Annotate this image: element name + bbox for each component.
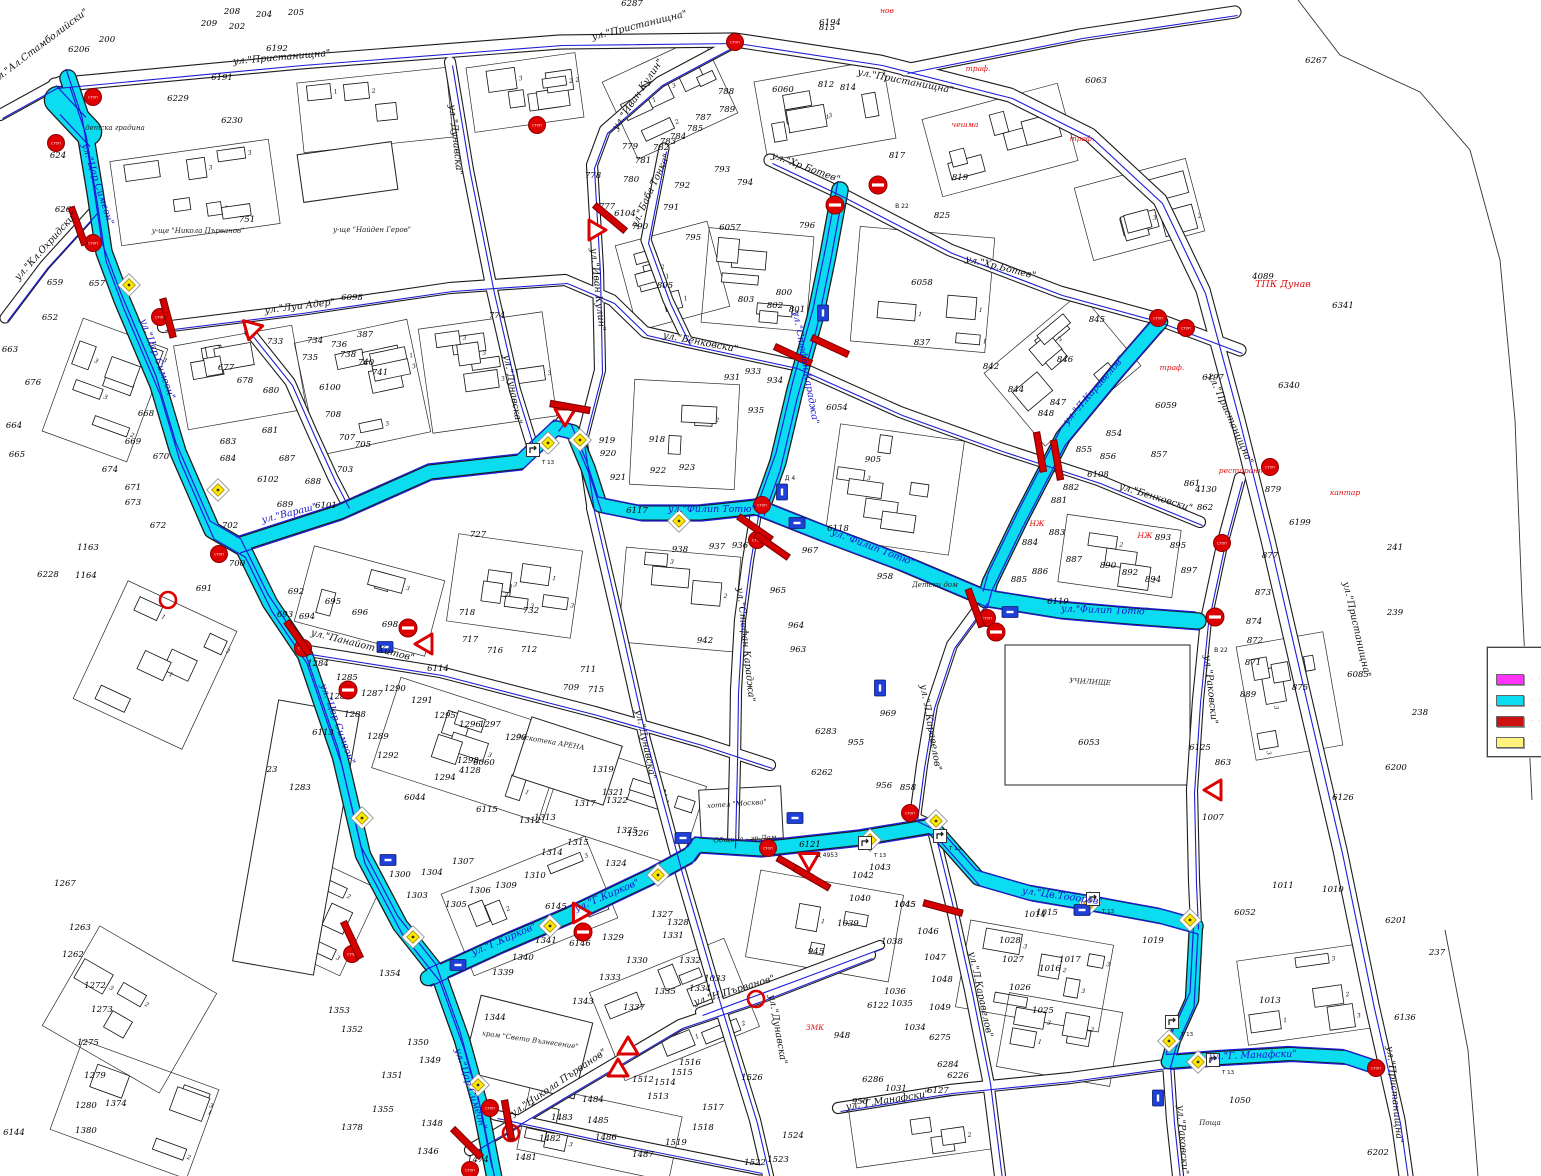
svg-text:Т 13: Т 13 xyxy=(873,853,887,859)
parcel-number: 1287 xyxy=(361,689,383,699)
parcel-number: 942 xyxy=(697,636,713,646)
parcel-number: 845 xyxy=(1089,315,1105,325)
parcel-number: 681 xyxy=(262,426,278,436)
red-note-label: траф. xyxy=(1070,134,1095,143)
legend-item-red-line: · · · · · · xyxy=(1496,715,1541,727)
parcel-number: 693 xyxy=(277,610,293,620)
parcel-number: 237 xyxy=(1428,948,1446,958)
parcel-number: 674 xyxy=(102,465,118,475)
parcel-number: 1335 xyxy=(654,987,676,997)
parcel-number: 1328 xyxy=(667,918,689,928)
parcel-number: 707 xyxy=(339,433,356,443)
parcel-number: 1283 xyxy=(289,783,311,793)
parcel-number: 736 xyxy=(331,340,348,350)
parcel-number: 6059 xyxy=(1155,401,1177,411)
parcel-number: 1292 xyxy=(377,751,399,761)
svg-text:1: 1 xyxy=(160,613,166,621)
parcel-number: 6044 xyxy=(404,793,426,803)
parcel-number: 905 xyxy=(865,455,881,465)
svg-text:2: 2 xyxy=(568,77,574,85)
parcel-number: 922 xyxy=(650,466,666,476)
svg-text:3: 3 xyxy=(568,1141,573,1149)
parcel-block: 3223 xyxy=(466,53,585,133)
parcel-number: 956 xyxy=(876,781,893,791)
svg-text:СТОП: СТОП xyxy=(1181,326,1191,330)
bar-sign-icon xyxy=(811,335,850,358)
parcel-number: 1348 xyxy=(421,1119,443,1129)
parcel-number: 895 xyxy=(1170,541,1186,551)
parcel-number: 792 xyxy=(674,181,690,191)
parcel-number: 886 xyxy=(1032,567,1049,577)
parcel-number: 1482 xyxy=(539,1134,561,1144)
street-name-label: у-ще "Найден Геров" xyxy=(332,226,411,234)
parcel-number: 933 xyxy=(745,367,761,377)
map-svg: 3332132232311133132333323133333213133111… xyxy=(0,0,1541,1176)
parcel-number: 676 xyxy=(25,378,42,388)
svg-text:Т 13: Т 13 xyxy=(541,460,555,466)
svg-text:1: 1 xyxy=(683,295,689,303)
parcel-number: 1514 xyxy=(654,1078,676,1088)
parcel-number: 6226 xyxy=(947,1071,969,1081)
parcel-number: 6194 xyxy=(819,18,841,28)
svg-text:1: 1 xyxy=(821,918,826,926)
svg-text:3: 3 xyxy=(1106,961,1111,969)
parcel-number: 812 xyxy=(818,80,834,90)
svg-text:3: 3 xyxy=(671,82,678,90)
parcel-number: 1518 xyxy=(692,1123,714,1133)
parcel-number: 657 xyxy=(89,279,106,289)
parcel-number: 897 xyxy=(1181,566,1198,576)
parcel-block: 121 xyxy=(73,581,239,751)
parcel-number: 202 xyxy=(228,22,245,32)
parcel-number: 1013 xyxy=(1259,996,1281,1006)
parcel-number: 1297 xyxy=(479,720,501,730)
parcel-number: 918 xyxy=(649,435,666,445)
parcel-number: 684 xyxy=(220,454,236,464)
parcel-number: 1267 xyxy=(54,879,76,889)
svg-text:СТОП: СТОП xyxy=(905,811,915,815)
parcel-number: 802 xyxy=(767,301,783,311)
street-name-label: Д 4953 xyxy=(816,852,838,859)
svg-text:3: 3 xyxy=(108,984,115,992)
parcel-number: 238 xyxy=(1411,708,1429,718)
svg-text:1: 1 xyxy=(409,352,414,360)
parcel-number: 23 xyxy=(266,765,278,775)
street-name-label: ул."Пристанищна" xyxy=(1340,580,1373,679)
map-canvas[interactable]: 3332132232311133132333323133333213133111… xyxy=(0,0,1541,1176)
svg-text:2: 2 xyxy=(574,76,580,84)
parcel-number: 1515 xyxy=(671,1068,693,1078)
parcel-number: 6127 xyxy=(927,1086,949,1096)
legend-title: · · xyxy=(1496,658,1541,664)
parcel-number: 1007 xyxy=(1202,813,1224,823)
svg-text:СТОП: СТОП xyxy=(730,40,740,44)
noentry-sign-icon xyxy=(869,176,887,194)
svg-text:Т 13: Т 13 xyxy=(1180,1032,1194,1038)
parcel-number: 1290 xyxy=(384,684,406,694)
parcel-number: 963 xyxy=(790,645,806,655)
svg-text:3: 3 xyxy=(518,75,523,82)
parcel-number: 887 xyxy=(1066,555,1083,565)
parcel-number: 6058 xyxy=(911,278,933,288)
svg-text:2: 2 xyxy=(1061,967,1067,975)
svg-text:2: 2 xyxy=(673,118,680,126)
parcel-number: 854 xyxy=(1106,429,1122,439)
parcel-number: 967 xyxy=(802,546,819,556)
yield-sign-icon xyxy=(415,634,432,654)
svg-text:2: 2 xyxy=(1196,212,1203,220)
svg-text:СТОП: СТОП xyxy=(763,846,773,850)
noentry-sign-icon xyxy=(1206,608,1224,626)
svg-text:2: 2 xyxy=(345,892,352,900)
parcel-number: 6230 xyxy=(221,116,243,126)
parcel-number: 1519 xyxy=(665,1138,687,1148)
parcel-number: 1310 xyxy=(524,871,546,881)
parcel-number: 6262 xyxy=(811,768,833,778)
parcel-number: 774 xyxy=(489,311,505,321)
parcel-number: 1011 xyxy=(1272,881,1294,891)
parcel-number: 793 xyxy=(714,165,730,175)
info-sign-icon xyxy=(675,833,691,844)
parcel-number: 1483 xyxy=(551,1113,573,1123)
parcel-number: 789 xyxy=(719,105,736,115)
street-name-label: ул."Филип Тотю" xyxy=(667,504,756,515)
parcel-number: 1374 xyxy=(105,1099,127,1109)
parcel-number: 969 xyxy=(880,709,897,719)
parcel-number: 923 xyxy=(679,463,695,473)
parcel-number: 1351 xyxy=(381,1071,403,1081)
parcel-number: 936 xyxy=(732,541,749,551)
parcel-number: 209 xyxy=(200,19,218,29)
parcel-number: 779 xyxy=(622,142,639,152)
parcel-number: 1524 xyxy=(782,1131,804,1141)
parcel-number: 695 xyxy=(325,597,341,607)
parcel-number: 1016 xyxy=(1039,964,1061,974)
parcel-number: 6200 xyxy=(1385,763,1407,773)
svg-text:3: 3 xyxy=(1023,943,1028,951)
svg-text:3: 3 xyxy=(248,150,253,157)
parcel-number: 1353 xyxy=(328,1006,350,1016)
parcel-number: 241 xyxy=(1386,543,1403,553)
parcel-number: 6199 xyxy=(1289,518,1311,528)
parcel-number: 6340 xyxy=(1278,381,1300,391)
svg-text:3: 3 xyxy=(513,581,518,588)
info-sign-icon xyxy=(875,680,886,696)
svg-text:3: 3 xyxy=(570,602,575,609)
svg-text:СТОП: СТОП xyxy=(1217,541,1227,545)
parcel-number: 1522 xyxy=(744,1158,766,1168)
parcel-number: 200 xyxy=(98,35,116,45)
parcel-number: 696 xyxy=(352,608,369,618)
stop-sign-icon: СТОП xyxy=(754,497,771,514)
parcel-number: 893 xyxy=(1155,533,1171,543)
parcel-number: 6341 xyxy=(1332,301,1354,311)
parcel-number: 787 xyxy=(695,113,712,123)
stop-sign-icon: СТОП xyxy=(48,135,65,152)
parcel-number: 965 xyxy=(770,586,786,596)
parcel-number: 1262 xyxy=(62,950,84,960)
parcel-number: 6136 xyxy=(1394,1013,1416,1023)
parcel-number: 1045 xyxy=(894,900,916,910)
svg-text:1: 1 xyxy=(1283,1017,1288,1024)
svg-text:СТОП: СТОП xyxy=(88,95,98,99)
svg-text:3: 3 xyxy=(828,112,833,120)
parcel-number: 1034 xyxy=(904,1023,926,1033)
parcel-number: 1330 xyxy=(626,956,648,966)
parcel-number: 842 xyxy=(983,362,999,372)
stop-sign-icon: СТОП xyxy=(1214,535,1231,552)
parcel-number: 883 xyxy=(1049,528,1065,538)
parcel-number: 847 xyxy=(1050,398,1067,408)
parcel-number: 1015 xyxy=(1036,908,1058,918)
parcel-number: 1309 xyxy=(495,881,517,891)
parcel-number: 6057 xyxy=(719,223,741,233)
parcel-number: 1322 xyxy=(606,796,628,806)
parcel-number: 1331 xyxy=(662,931,684,941)
svg-text:2: 2 xyxy=(370,87,376,94)
parcel-number: 882 xyxy=(1063,483,1079,493)
parcel-number: 1284 xyxy=(307,659,329,669)
svg-text:2: 2 xyxy=(1089,1026,1095,1034)
street-name-label: детска градина xyxy=(85,124,145,132)
svg-text:СТОП: СТОП xyxy=(982,616,992,620)
street-name-label: ул."Хр.Ботев" xyxy=(963,253,1037,281)
parcel-block: 3333 xyxy=(418,312,557,434)
parcel-number: 819 xyxy=(952,173,969,183)
parcel-number: 1315 xyxy=(567,838,589,848)
parcel-number: 1275 xyxy=(77,1038,99,1048)
parcel-number: 791 xyxy=(663,203,679,213)
parcel-number: 692 xyxy=(288,587,304,597)
parcel-number: 805 xyxy=(657,281,673,291)
legend-item-yellow-line: · · · · · · xyxy=(1496,736,1541,748)
street-name-label: В 22 xyxy=(895,203,909,210)
parcel-number: 698 xyxy=(382,620,399,630)
parcel-number: 844 xyxy=(1008,385,1024,395)
parcel-number: 6125 xyxy=(1189,743,1211,753)
parcel-number: 785 xyxy=(687,124,703,134)
parcel-number: 705 xyxy=(355,440,371,450)
parcel-number: 6052 xyxy=(1234,908,1256,918)
svg-text:Т 13: Т 13 xyxy=(948,846,962,852)
parcel-number: 1343 xyxy=(572,997,594,1007)
svg-text:СТОП: СТОП xyxy=(51,141,61,145)
parcel-number: 1380 xyxy=(75,1126,97,1136)
parcel-block: 3213 xyxy=(1237,944,1373,1046)
parcel-number: 1273 xyxy=(91,1005,113,1015)
parcel-number: 1312 xyxy=(519,816,541,826)
parcel-number: 856 xyxy=(1100,452,1117,462)
svg-text:3: 3 xyxy=(1081,988,1086,996)
parcel-number: 875 xyxy=(1292,683,1308,693)
parcel-number: 1017 xyxy=(1059,955,1081,965)
svg-text:3: 3 xyxy=(584,852,590,860)
parcel-number: 669 xyxy=(125,437,142,447)
parcel-number: 6113 xyxy=(312,728,334,738)
parcel-number: 955 xyxy=(848,738,864,748)
parcel-number: 894 xyxy=(1145,575,1161,585)
legend-swatch-cyan-street xyxy=(1496,695,1524,706)
parcel-number: 1332 xyxy=(679,956,701,966)
parcel-number: 848 xyxy=(1038,409,1055,419)
svg-text:Т 13: Т 13 xyxy=(1221,1070,1235,1076)
svg-text:Т 13: Т 13 xyxy=(1101,909,1115,915)
parcel-number: 934 xyxy=(767,376,783,386)
parcel-number: 1288 xyxy=(344,710,366,720)
parcel-block: 13333 xyxy=(446,534,582,639)
parcel-number: 738 xyxy=(340,350,357,360)
parcel-number: 780 xyxy=(623,175,640,185)
parcel-number: 733 xyxy=(267,337,283,347)
svg-text:СТОП: СТОП xyxy=(1371,1066,1381,1070)
parcel-number: 691 xyxy=(196,584,212,594)
parcel-number: 6267 xyxy=(1305,56,1327,66)
red-note-label: ресторант xyxy=(1219,466,1265,475)
red-note-label: ТПК Дунав xyxy=(1255,279,1311,290)
svg-text:3: 3 xyxy=(1046,1019,1051,1027)
parcel-number: 680 xyxy=(263,386,280,396)
svg-text:2: 2 xyxy=(224,647,231,655)
svg-text:СТОП: СТОП xyxy=(1265,465,1275,469)
parcel-number: 6145 xyxy=(545,902,567,912)
red-note-label: траф. xyxy=(966,64,991,73)
info-sign-icon xyxy=(380,855,396,866)
parcel-number: 1481 xyxy=(515,1153,537,1163)
red-note-label: кантар xyxy=(1330,488,1360,497)
parcel-number: 6201 xyxy=(1385,916,1407,926)
parcel-number: 664 xyxy=(6,421,22,431)
parcel-number: 964 xyxy=(788,621,804,631)
parcel-number: 740 xyxy=(358,358,375,368)
parcel-number: 920 xyxy=(600,449,617,459)
parcel-number: 6229 xyxy=(167,94,189,104)
parcel-number: 1329 xyxy=(602,933,624,943)
legend: · · · · · · · · ·· · · · · ·· · · · · ··… xyxy=(1487,647,1541,757)
svg-text:3: 3 xyxy=(335,954,342,962)
street-name-label: ул."Бенковски" xyxy=(661,330,739,356)
parcel-number: 931 xyxy=(724,373,740,383)
parcel-number: 677 xyxy=(218,363,235,373)
parcel-number: 732 xyxy=(523,606,539,616)
parcel-number: 4128 xyxy=(458,766,481,776)
parcel-number: 837 xyxy=(914,338,931,348)
parcel-number: 1354 xyxy=(379,969,401,979)
parcel-number: 788 xyxy=(718,87,735,97)
parcel-number: 1306 xyxy=(469,886,491,896)
svg-text:3: 3 xyxy=(1357,1012,1362,1019)
parcel-number: 694 xyxy=(299,612,315,622)
parcel-number: 1516 xyxy=(679,1058,701,1068)
parcel-number: 668 xyxy=(138,409,155,419)
svg-text:СТОП: СТОП xyxy=(1153,316,1163,320)
parcel-number: 6053 xyxy=(1078,738,1100,748)
parcel-number: 1326 xyxy=(627,829,649,839)
parcel-number: 735 xyxy=(302,353,318,363)
parcel-number: 1272 xyxy=(84,981,106,991)
parcel-number: 885 xyxy=(1011,575,1027,585)
stop-sign-icon: СТОП xyxy=(1150,310,1167,327)
parcel-number: 874 xyxy=(1246,617,1262,627)
noentry-sign-icon xyxy=(574,923,592,941)
info-sign-icon xyxy=(1153,1090,1164,1106)
parcel-number: 1033 xyxy=(704,974,726,984)
parcel-number: 958 xyxy=(877,572,894,582)
parcel-block: 2 xyxy=(629,379,739,489)
parcel-number: 1344 xyxy=(484,1013,506,1023)
parcel-number: 6144 xyxy=(3,1128,25,1138)
svg-text:3: 3 xyxy=(547,370,552,377)
parcel-number: 877 xyxy=(1262,551,1279,561)
legend-item-cyan-street: · · · · · · xyxy=(1496,694,1541,706)
parcel-number: 1040 xyxy=(849,894,871,904)
parcel-number: 6206 xyxy=(68,45,90,55)
svg-text:2: 2 xyxy=(143,1000,151,1009)
parcel-number: 6060 xyxy=(772,85,794,95)
parcel-number: 921 xyxy=(610,473,626,483)
info-sign-icon xyxy=(1002,607,1018,618)
parcel-number: 1263 xyxy=(69,923,91,933)
parcel-number: 6191 xyxy=(211,73,233,83)
parcel-number: 781 xyxy=(635,156,651,166)
parcel-block: 111 xyxy=(850,226,995,352)
parcel-number: 6286 xyxy=(862,1075,884,1085)
info-sign-icon xyxy=(450,960,466,971)
parcel-number: 1333 xyxy=(599,973,621,983)
parcel-number: 1025 xyxy=(1032,1006,1054,1016)
svg-text:3: 3 xyxy=(102,394,108,402)
parcel-number: 718 xyxy=(459,608,476,618)
parcel-number: 1163 xyxy=(77,543,99,553)
stop-sign-icon: СТОП xyxy=(727,34,744,51)
parcel-number: 1307 xyxy=(452,857,474,867)
landmark-building xyxy=(297,142,398,203)
noentry-sign-icon xyxy=(826,196,844,214)
svg-text:1: 1 xyxy=(694,1033,700,1041)
noentry-sign-icon xyxy=(339,681,357,699)
svg-text:2: 2 xyxy=(504,905,511,913)
parcel-number: 825 xyxy=(934,211,950,221)
parcel-number: 1294 xyxy=(434,773,456,783)
parcel-number: 1314 xyxy=(541,848,563,858)
parcel-number: 688 xyxy=(305,477,322,487)
parcel-number: 857 xyxy=(1151,450,1168,460)
svg-text:3: 3 xyxy=(670,559,675,566)
info-sign-icon xyxy=(818,305,829,321)
legend-label: · · · · · · · xyxy=(1532,676,1541,682)
street-name-label: ул."Дунавска" xyxy=(766,993,789,1065)
parcel-number: 1028 xyxy=(999,936,1021,946)
svg-text:2: 2 xyxy=(966,1131,972,1139)
parcel-number: 796 xyxy=(799,221,816,231)
svg-text:3: 3 xyxy=(1265,751,1273,756)
street-name-label: В 22 xyxy=(1214,647,1228,654)
parcel-number: 6101 xyxy=(315,501,337,511)
parcel-number: 6122 xyxy=(867,1001,889,1011)
parcel-number: 734 xyxy=(307,336,323,346)
parcel-number: 1300 xyxy=(389,870,411,880)
parcel-number: 624 xyxy=(50,151,66,161)
parcel-number: 751 xyxy=(239,215,255,225)
parcel-number: 6202 xyxy=(1367,1148,1389,1158)
info-sign-icon xyxy=(787,813,803,824)
svg-text:СТОП: СТОП xyxy=(757,503,767,507)
ring-sign-icon xyxy=(160,592,176,608)
parcel-number: 1319 xyxy=(592,765,614,775)
parcel-number: 935 xyxy=(748,406,764,416)
parcel-number: 700 xyxy=(229,559,246,569)
red-note-label: НЖ xyxy=(1029,519,1046,528)
parcel-number: 873 xyxy=(1255,588,1271,598)
